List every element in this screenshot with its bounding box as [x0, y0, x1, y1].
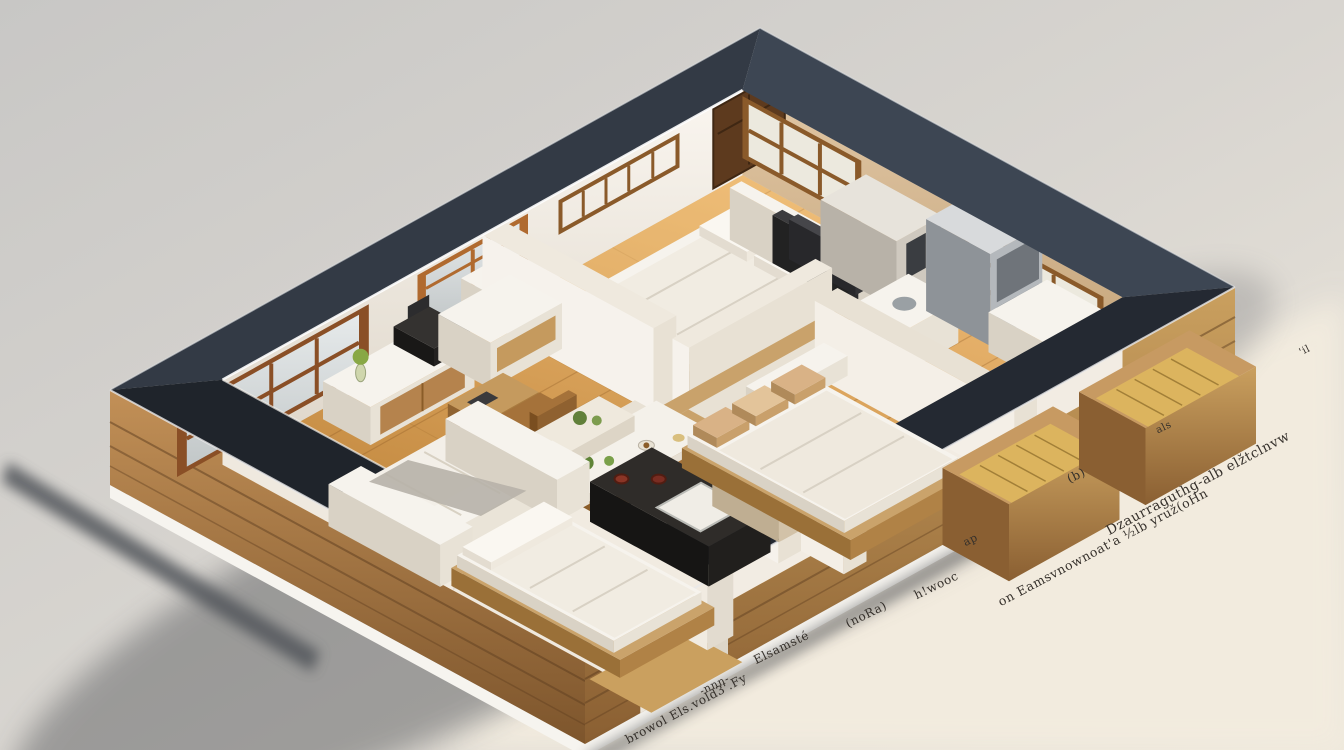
floorplan-render-scene: 'ilalsDzaurraguthg-alb elžtclnvw(b)apon …	[0, 0, 1344, 750]
floorplan-3d-model: 'ilalsDzaurraguthg-alb elžtclnvw(b)apon …	[0, 0, 1344, 750]
